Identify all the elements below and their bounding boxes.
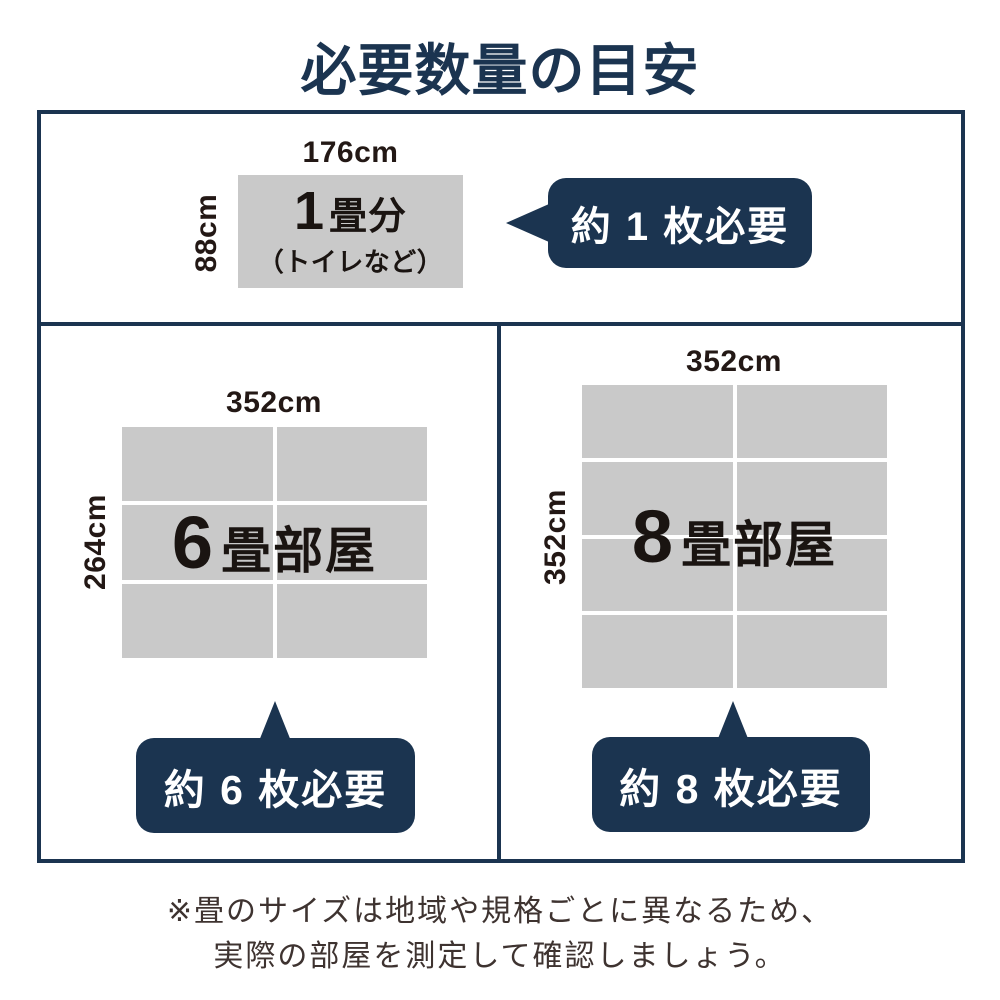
six-tatami-title: 6 畳部屋 <box>172 506 377 580</box>
one-tatami-height-label: 88cm <box>190 173 224 293</box>
eight-tatami-room-label: 8 畳部屋 <box>582 385 887 688</box>
six-tatami-width-label: 352cm <box>124 386 424 420</box>
eight-tatami-title: 8 畳部屋 <box>632 500 837 574</box>
page-title: 必要数量の目安 <box>0 26 1000 107</box>
six-tatami-quantity-bubble: 約 6 枚必要 <box>136 738 415 833</box>
one-tatami-rect: 1 畳分 （トイレなど） <box>238 175 463 288</box>
eight-tatami-number: 8 <box>632 500 673 574</box>
six-tatami-room-label: 6 畳部屋 <box>122 427 427 658</box>
eight-tatami-quantity-bubble: 約 8 枚必要 <box>592 737 870 832</box>
vertical-divider <box>497 322 501 863</box>
one-tatami-width-label: 176cm <box>238 136 463 170</box>
six-tatami-quantity-text: 約 6 枚必要 <box>164 756 388 816</box>
eight-tatami-unit: 畳部屋 <box>681 520 837 570</box>
one-tatami-number: 1 <box>294 184 324 238</box>
six-tatami-number: 6 <box>172 506 213 580</box>
bubble-tail-up-icon <box>717 701 749 741</box>
footer-note-line2: 実際の部屋を測定して確認しましょう。 <box>0 931 1000 975</box>
horizontal-divider <box>37 322 965 326</box>
bubble-tail-up-icon <box>259 701 291 741</box>
one-tatami-quantity-text: 約 1 枚必要 <box>571 194 789 252</box>
one-tatami-unit: 畳分 <box>329 198 407 236</box>
six-tatami-height-label: 264cm <box>79 472 113 612</box>
eight-tatami-height-label: 352cm <box>539 467 573 607</box>
eight-tatami-quantity-text: 約 8 枚必要 <box>619 755 843 815</box>
one-tatami-usage-note: （トイレなど） <box>258 242 444 279</box>
one-tatami-quantity-bubble: 約 1 枚必要 <box>548 178 812 268</box>
eight-tatami-width-label: 352cm <box>584 345 884 379</box>
bubble-tail-left-icon <box>506 204 549 242</box>
tatami-quantity-infographic: 必要数量の目安 176cm 88cm 1 畳分 （トイレなど） 約 1 枚必要 … <box>0 0 1000 1000</box>
one-tatami-title: 1 畳分 <box>294 184 407 238</box>
footer-note-line1: ※畳のサイズは地域や規格ごとに異なるため、 <box>0 886 1000 930</box>
six-tatami-unit: 畳部屋 <box>221 526 377 576</box>
